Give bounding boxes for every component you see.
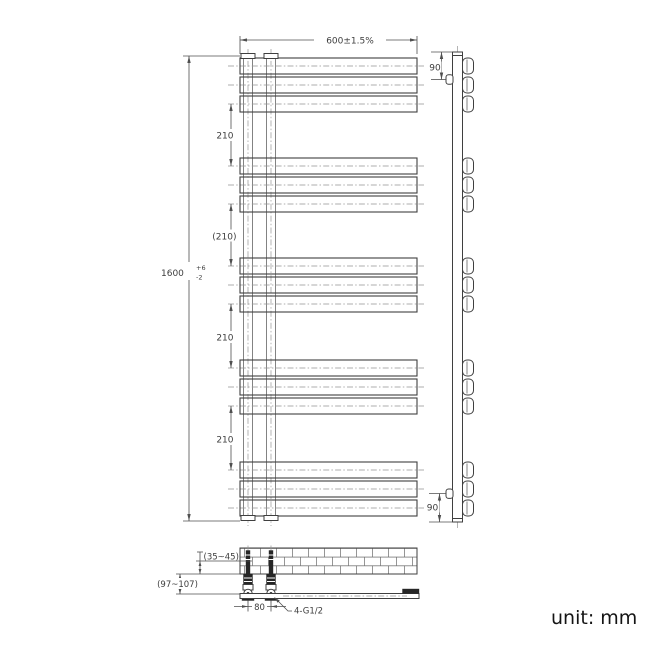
collector-tubes bbox=[244, 49, 276, 526]
thread-spec-leader: 4-G1/2 bbox=[275, 598, 324, 617]
tube-caps bbox=[241, 54, 278, 521]
height-dimension-label: 1600 bbox=[161, 269, 184, 279]
height-dimension: 1600 +6 -2 bbox=[157, 56, 240, 521]
installation-view: (35~45) (97~107) 80 4-G1/2 bbox=[157, 546, 419, 617]
height-tolerance-minus: -2 bbox=[196, 274, 202, 282]
valve-spacing-dimension-label: 80 bbox=[254, 603, 265, 613]
bracket-bottom-dimension-label: 90 bbox=[427, 504, 439, 514]
towel-radiator-drawing: 600±1.5% 1600 +6 -2 210 (210) bbox=[0, 0, 650, 650]
width-dimension-label: 600±1.5% bbox=[326, 37, 374, 47]
pitch-dimension-label-2: (210) bbox=[212, 233, 236, 243]
width-dimension: 600±1.5% bbox=[240, 34, 417, 54]
height-tolerance-plus: +6 bbox=[196, 264, 206, 272]
side-view: 90 90 bbox=[426, 46, 474, 528]
top-wall-bracket bbox=[446, 75, 453, 84]
wall-section bbox=[240, 548, 417, 574]
bracket-top-dimension-label: 90 bbox=[429, 64, 441, 74]
thread-spec-label: 4-G1/2 bbox=[294, 607, 323, 617]
pitch-dimension-label-1: 210 bbox=[216, 132, 233, 142]
pitch-dimensions: 210 (210) 210 210 bbox=[211, 104, 237, 470]
bottom-wall-bracket bbox=[446, 489, 453, 498]
bar-centerlines bbox=[228, 66, 424, 508]
front-view: 600±1.5% 1600 +6 -2 210 (210) bbox=[157, 34, 424, 526]
wall-clearance-dimension-label: (97~107) bbox=[157, 580, 198, 590]
bar-end-stubs bbox=[463, 58, 474, 516]
unit-label: unit: mm bbox=[551, 607, 637, 629]
pitch-dimension-label-4: 210 bbox=[216, 436, 233, 446]
technical-drawing-page: 600±1.5% 1600 +6 -2 210 (210) bbox=[0, 0, 650, 650]
pitch-dimension-label-3: 210 bbox=[216, 334, 233, 344]
wall-clearance-dimension: (97~107) bbox=[157, 574, 240, 594]
pipe-depth-dimension-label: (35~45) bbox=[204, 553, 239, 563]
valve-spacing-dimension: 80 bbox=[234, 601, 286, 614]
